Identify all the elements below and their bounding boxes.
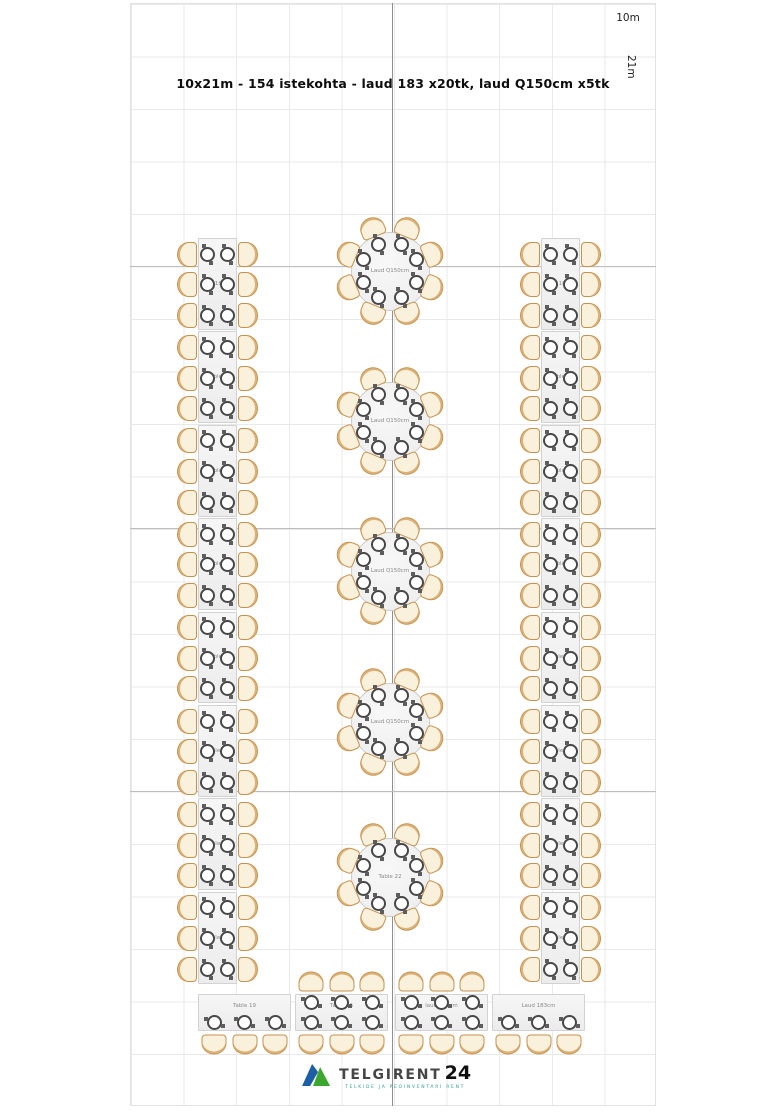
chair-icon [520,676,540,701]
plate-icon [200,464,215,479]
logo: TELGIRENT 24 TELKIDE JA PEOINVENTARI REN… [300,1058,471,1094]
plate-icon [220,807,235,822]
plate-icon [543,651,558,666]
plate-icon [220,277,235,292]
plate-icon [563,775,578,790]
chair-icon [520,926,540,951]
plate-icon [220,340,235,355]
plate-icon [220,464,235,479]
plate-icon [394,896,409,911]
plate-icon [200,838,215,853]
plate-icon [200,744,215,759]
plate-icon [409,425,424,440]
chair-icon [526,1034,551,1054]
mountain-logo-icon [300,1058,332,1094]
plate-icon [465,1015,480,1030]
plate-icon [220,401,235,416]
plate-icon [356,881,371,896]
plate-icon [220,308,235,323]
plate-icon [563,588,578,603]
plate-icon [543,931,558,946]
chair-icon [177,926,197,951]
chair-icon [520,646,540,671]
height-dimension-label: 21m [625,55,637,79]
plate-icon [404,995,419,1010]
chair-icon [177,802,197,827]
plate-icon [237,1015,252,1030]
plate-icon [334,1015,349,1030]
chair-icon [520,272,540,297]
plate-icon [501,1015,516,1030]
plate-icon [394,440,409,455]
plate-icon [220,744,235,759]
logo-tagline: TELKIDE JA PEOINVENTARI RENT [345,1085,465,1090]
plate-icon [200,775,215,790]
plate-icon [200,495,215,510]
logo-name: TELGIRENT [339,1067,442,1083]
chair-icon [557,1034,582,1054]
plate-icon [563,807,578,822]
plate-icon [563,247,578,262]
plate-icon [434,1015,449,1030]
plate-icon [543,401,558,416]
plate-icon [563,744,578,759]
chair-icon [429,1034,454,1054]
plate-icon [409,726,424,741]
plate-icon [220,838,235,853]
plate-icon [563,308,578,323]
chair-icon [520,615,540,640]
plate-icon [304,1015,319,1030]
chair-icon [520,396,540,421]
chair-icon [299,971,324,991]
chair-icon [360,1034,385,1054]
plate-icon [543,277,558,292]
plate-icon [220,495,235,510]
plate-icon [563,371,578,386]
chair-icon [329,971,354,991]
chair-icon [177,522,197,547]
plate-icon [220,775,235,790]
chair-icon [177,676,197,701]
plate-icon [220,868,235,883]
plate-icon [543,495,558,510]
chair-icon [177,396,197,421]
plate-icon [543,744,558,759]
plate-icon [394,741,409,756]
plate-icon [200,308,215,323]
plate-icon [563,962,578,977]
chair-icon [177,366,197,391]
plate-icon [543,868,558,883]
plate-icon [543,464,558,479]
plate-icon [563,340,578,355]
chair-icon [177,615,197,640]
floor-plan-page: 10x21m - 154 istekohta - laud 183 x20tk,… [0,0,778,1117]
plate-icon [356,575,371,590]
plate-icon [563,527,578,542]
plate-icon [220,962,235,977]
plate-icon [394,387,409,402]
plate-icon [394,537,409,552]
plate-icon [304,995,319,1010]
plate-icon [200,277,215,292]
plate-icon [365,995,380,1010]
chair-icon [496,1034,521,1054]
chair-icon [360,971,385,991]
plate-icon [220,714,235,729]
plate-icon [409,275,424,290]
chair-icon [520,709,540,734]
plate-icon [200,868,215,883]
plate-icon [220,588,235,603]
chair-icon [520,490,540,515]
chair-icon [177,490,197,515]
plate-icon [394,688,409,703]
plate-icon [563,868,578,883]
plate-icon [356,275,371,290]
plate-icon [562,1015,577,1030]
plate-icon [563,931,578,946]
plate-icon [543,838,558,853]
plate-icon [563,620,578,635]
chair-icon [399,1034,424,1054]
plate-icon [200,247,215,262]
plate-icon [563,714,578,729]
plate-icon [465,995,480,1010]
table-label: Table 19 [198,1003,291,1010]
chair-icon [520,522,540,547]
logo-wordmark: TELGIRENT 24 [339,1062,471,1084]
chair-icon [520,863,540,888]
chair-icon [177,459,197,484]
plate-icon [200,371,215,386]
plate-icon [200,588,215,603]
chair-icon [177,739,197,764]
chair-icon [520,428,540,453]
plate-icon [220,527,235,542]
chair-icon [520,895,540,920]
chair-icon [520,833,540,858]
plate-icon [200,807,215,822]
chair-icon [299,1034,324,1054]
chair-icon [520,366,540,391]
plate-icon [394,237,409,252]
plate-icon [563,464,578,479]
logo-text: TELGIRENT 24 TELKIDE JA PEOINVENTARI REN… [339,1062,471,1090]
plate-icon [563,401,578,416]
chair-icon [177,242,197,267]
plate-icon [531,1015,546,1030]
chair-icon [520,770,540,795]
chair-icon [177,833,197,858]
chair-icon [399,971,424,991]
chair-icon [520,335,540,360]
plate-icon [543,247,558,262]
chair-icon [202,1034,227,1054]
plate-icon [200,931,215,946]
plate-icon [207,1015,222,1030]
chair-icon [177,552,197,577]
chair-icon [520,303,540,328]
plate-icon [409,575,424,590]
plate-icon [563,838,578,853]
width-dimension-label: 10m [601,12,655,24]
plate-icon [200,340,215,355]
chair-icon [177,957,197,982]
chair-icon [177,895,197,920]
chair-icon [177,272,197,297]
table-label: Laud 183cm [492,1003,585,1010]
plate-icon [200,401,215,416]
plate-icon [220,620,235,635]
chair-icon [520,459,540,484]
plate-icon [200,962,215,977]
plate-icon [563,651,578,666]
plate-icon [543,807,558,822]
chair-icon [263,1034,288,1054]
plate-icon [268,1015,283,1030]
page-title: 10x21m - 154 istekohta - laud 183 x20tk,… [130,76,656,91]
chair-icon [177,709,197,734]
chair-icon [520,242,540,267]
plate-icon [365,1015,380,1030]
plate-icon [200,714,215,729]
plate-icon [434,995,449,1010]
plate-icon [200,527,215,542]
plate-icon [394,590,409,605]
plate-icon [394,290,409,305]
plate-icon [220,931,235,946]
plate-icon [543,775,558,790]
plate-icon [220,371,235,386]
plate-icon [543,308,558,323]
chair-icon [177,646,197,671]
chair-icon [177,583,197,608]
plate-icon [543,962,558,977]
plate-icon [220,247,235,262]
plate-icon [409,881,424,896]
plate-icon [404,1015,419,1030]
plate-icon [334,995,349,1010]
chair-icon [177,770,197,795]
chair-icon [460,1034,485,1054]
plate-icon [543,371,558,386]
chair-icon [520,739,540,764]
plate-icon [200,620,215,635]
plate-icon [543,340,558,355]
chair-icon [520,802,540,827]
chair-icon [520,957,540,982]
plate-icon [543,714,558,729]
plate-icon [543,527,558,542]
plate-icon [200,651,215,666]
plate-icon [543,588,558,603]
chair-icon [520,552,540,577]
plate-icon [220,651,235,666]
chair-icon [177,303,197,328]
chair-icon [177,428,197,453]
plate-icon [563,277,578,292]
chair-icon [177,863,197,888]
chair-icon [460,971,485,991]
chair-icon [520,583,540,608]
plate-icon [543,620,558,635]
plate-icon [356,726,371,741]
chair-icon [329,1034,354,1054]
plate-icon [394,843,409,858]
chair-icon [429,971,454,991]
plate-icon [356,425,371,440]
plate-icon [563,495,578,510]
logo-number: 24 [445,1062,471,1084]
chair-icon [232,1034,257,1054]
chair-icon [177,335,197,360]
